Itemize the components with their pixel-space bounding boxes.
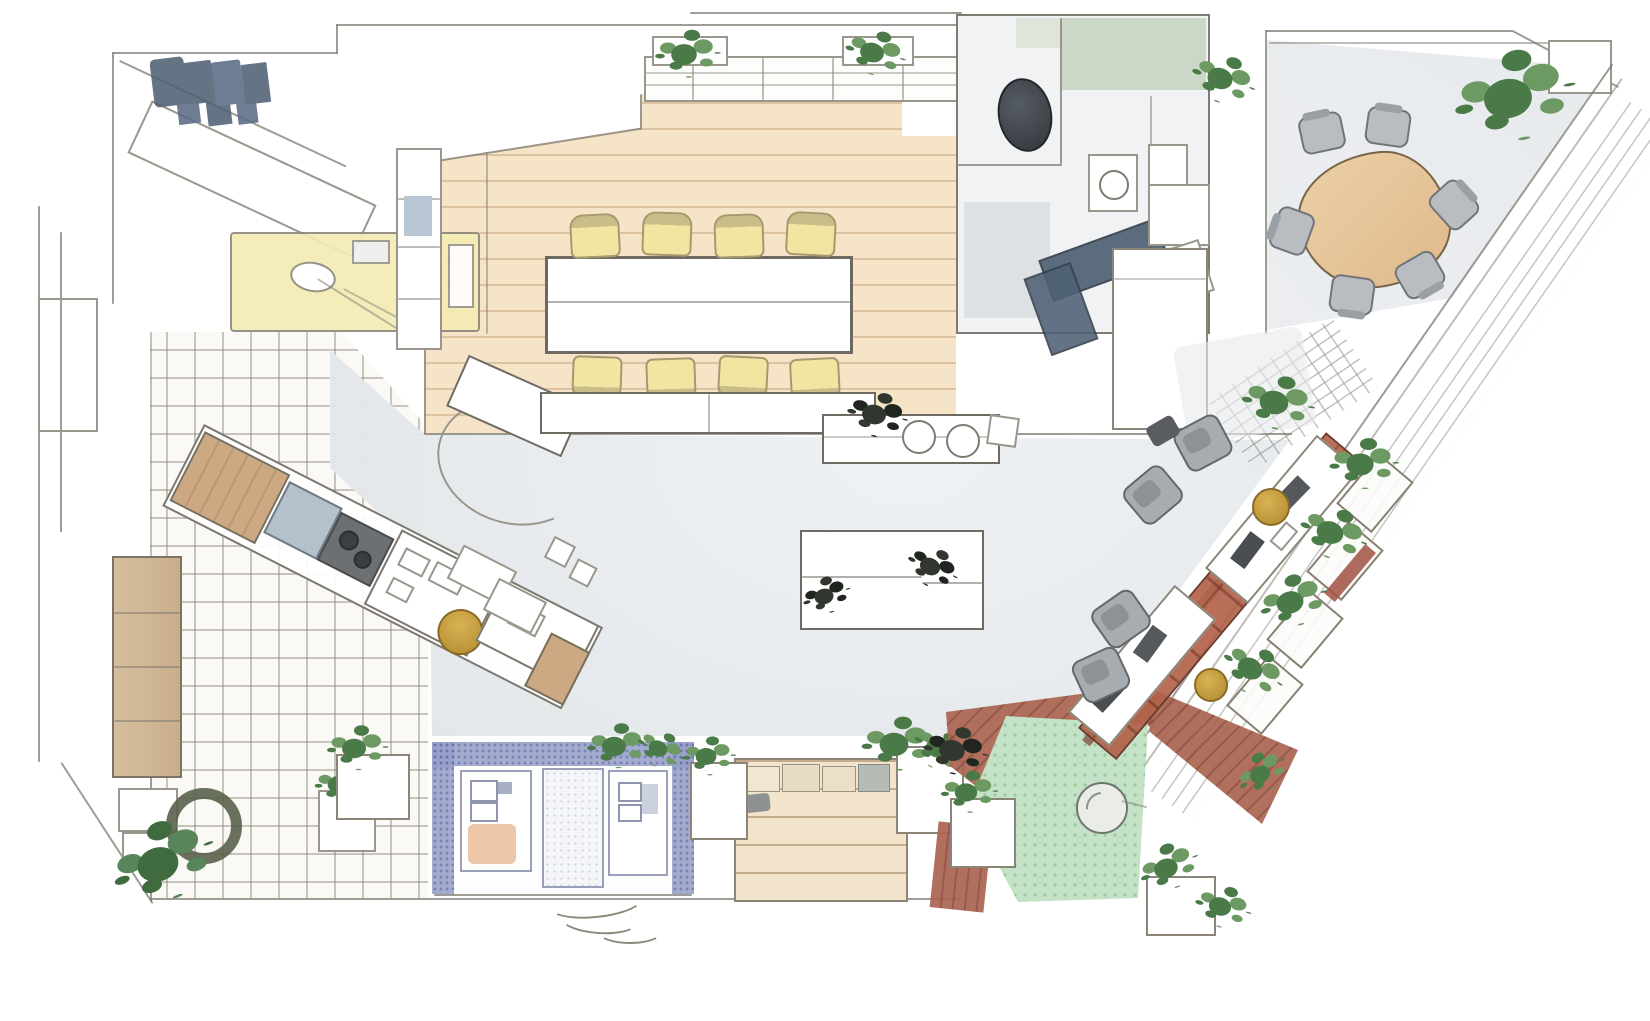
counter-cabinet <box>448 244 474 308</box>
planter-plant-icon <box>880 733 909 756</box>
kitchen-cabinet <box>1148 184 1210 246</box>
wall-line <box>38 206 40 762</box>
partition-line <box>958 164 1062 166</box>
counter-item <box>397 547 431 578</box>
planter-plant-icon <box>955 783 977 801</box>
storage-edge <box>1114 278 1206 280</box>
dining-chair <box>641 211 693 257</box>
meeting-chair <box>1364 105 1413 149</box>
rug-squiggle <box>598 920 662 944</box>
stone-table <box>1076 782 1128 834</box>
coffee-table <box>800 530 984 630</box>
booth-furniture <box>498 782 512 794</box>
planter-box <box>336 754 410 820</box>
shelf-line <box>114 720 180 722</box>
toilet-bowl <box>1099 170 1129 200</box>
green-wall <box>1062 18 1206 90</box>
pantry-shelf <box>112 556 182 778</box>
window-plant-icon <box>671 44 697 65</box>
stool-square <box>986 414 1020 448</box>
table-seam <box>802 576 922 578</box>
meeting-chair <box>1328 273 1377 317</box>
booth-door <box>542 768 604 888</box>
equipment-knob <box>335 527 362 554</box>
booth-panel <box>460 770 532 872</box>
equipment-knob <box>351 548 375 572</box>
dining-chair <box>569 213 621 260</box>
wall-line <box>112 52 338 54</box>
cushion <box>746 766 780 792</box>
table-seam <box>922 582 982 584</box>
kitchenette-counter <box>230 232 480 332</box>
table-seam <box>548 301 850 303</box>
wall-line <box>112 52 114 304</box>
planter-box <box>950 798 1016 868</box>
booth-furniture <box>618 804 642 822</box>
monitor <box>1230 531 1265 569</box>
counter-item <box>385 577 415 604</box>
wall-line <box>336 24 994 26</box>
window-mullion <box>832 58 834 100</box>
floor-plan-canvas <box>0 0 1650 1021</box>
planter-box <box>690 762 748 840</box>
counter-appliance <box>352 240 390 264</box>
cushion <box>858 764 890 792</box>
booth-furniture <box>470 780 498 802</box>
bench-divider <box>708 394 710 432</box>
orange-cushion <box>468 824 516 864</box>
dining-chair <box>785 211 837 258</box>
booth-furniture <box>618 782 642 802</box>
wall-line <box>690 12 962 14</box>
partition-line <box>1060 18 1062 164</box>
yellow-stool <box>1194 668 1228 702</box>
yellow-stool <box>1252 488 1290 526</box>
counter-edge <box>317 278 399 331</box>
booth-furniture <box>470 802 498 822</box>
long-table <box>545 256 853 354</box>
cushion <box>782 764 820 792</box>
bench-planter-plant-icon <box>1346 453 1373 475</box>
tiered-steps <box>734 758 908 902</box>
planter-bench <box>1548 40 1612 94</box>
toilet <box>1088 154 1138 212</box>
green-wall <box>1016 18 1062 48</box>
shelf-line <box>114 666 180 668</box>
shelf-line <box>114 612 180 614</box>
sink <box>288 258 339 296</box>
wall-line <box>640 94 642 130</box>
shelf-line <box>398 246 440 248</box>
booth-furniture <box>642 784 658 814</box>
planter-box <box>1146 876 1216 936</box>
shelf-box <box>404 196 432 236</box>
basin-mirror <box>992 74 1058 156</box>
wreath-plant <box>166 788 242 864</box>
booth-frame-left <box>432 742 454 894</box>
booth-panel <box>608 770 668 876</box>
booth-hedge-icon <box>602 737 626 757</box>
window-mullion <box>762 58 764 100</box>
wall-line <box>336 24 338 54</box>
stone-detail <box>1079 785 1124 830</box>
cushion <box>822 766 856 792</box>
stool <box>902 420 936 454</box>
bike-rack-scribble <box>149 56 189 108</box>
stool <box>946 424 980 458</box>
wall-line <box>1265 30 1513 32</box>
wall-cabinet <box>38 298 98 432</box>
planter-plant-icon <box>696 748 717 765</box>
dining-chair <box>713 213 765 259</box>
shelf-line <box>398 298 440 300</box>
wall-line <box>486 152 488 334</box>
planter-plant-icon <box>342 739 366 759</box>
shelf-wall <box>396 148 442 350</box>
wall-line <box>1265 30 1267 334</box>
